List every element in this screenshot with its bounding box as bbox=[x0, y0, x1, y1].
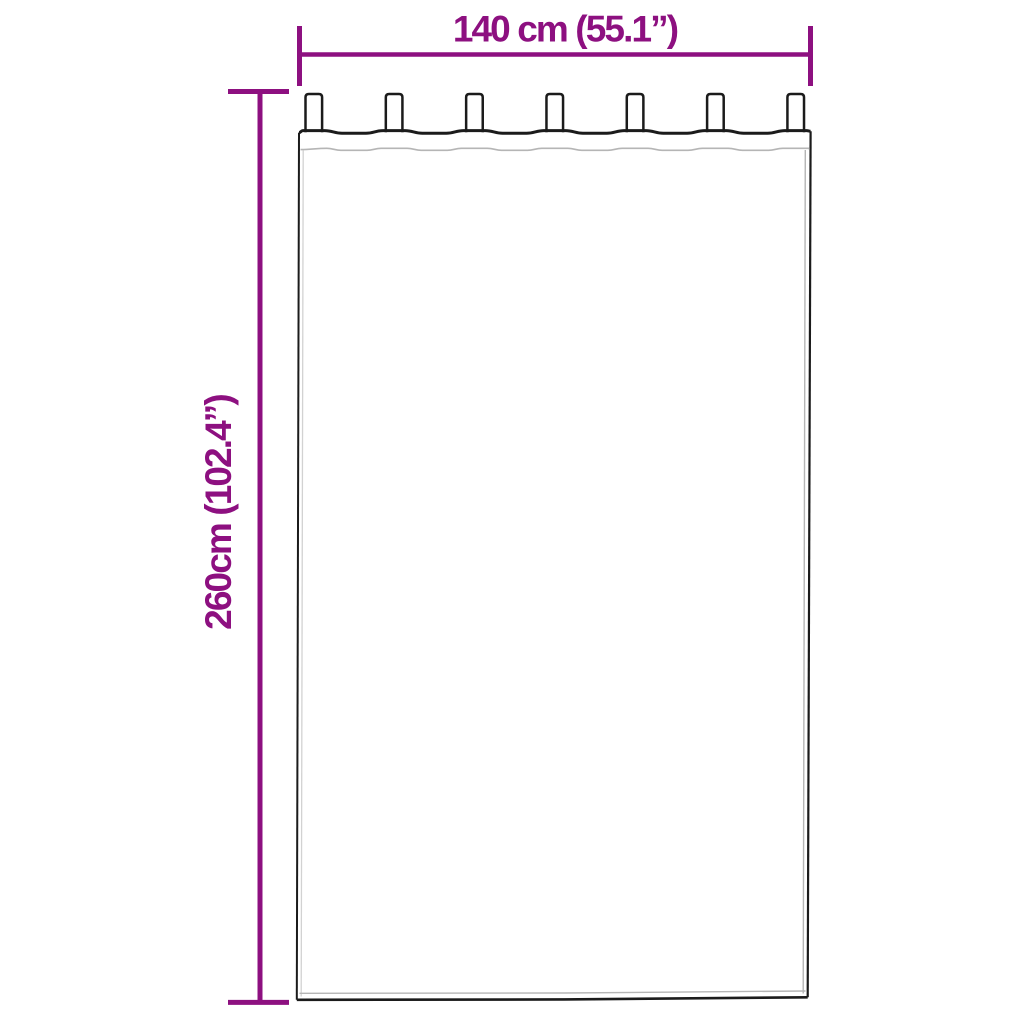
svg-text:260cm (102.4”): 260cm (102.4”) bbox=[198, 395, 239, 630]
svg-text:140 cm (55.1”): 140 cm (55.1”) bbox=[453, 9, 678, 50]
